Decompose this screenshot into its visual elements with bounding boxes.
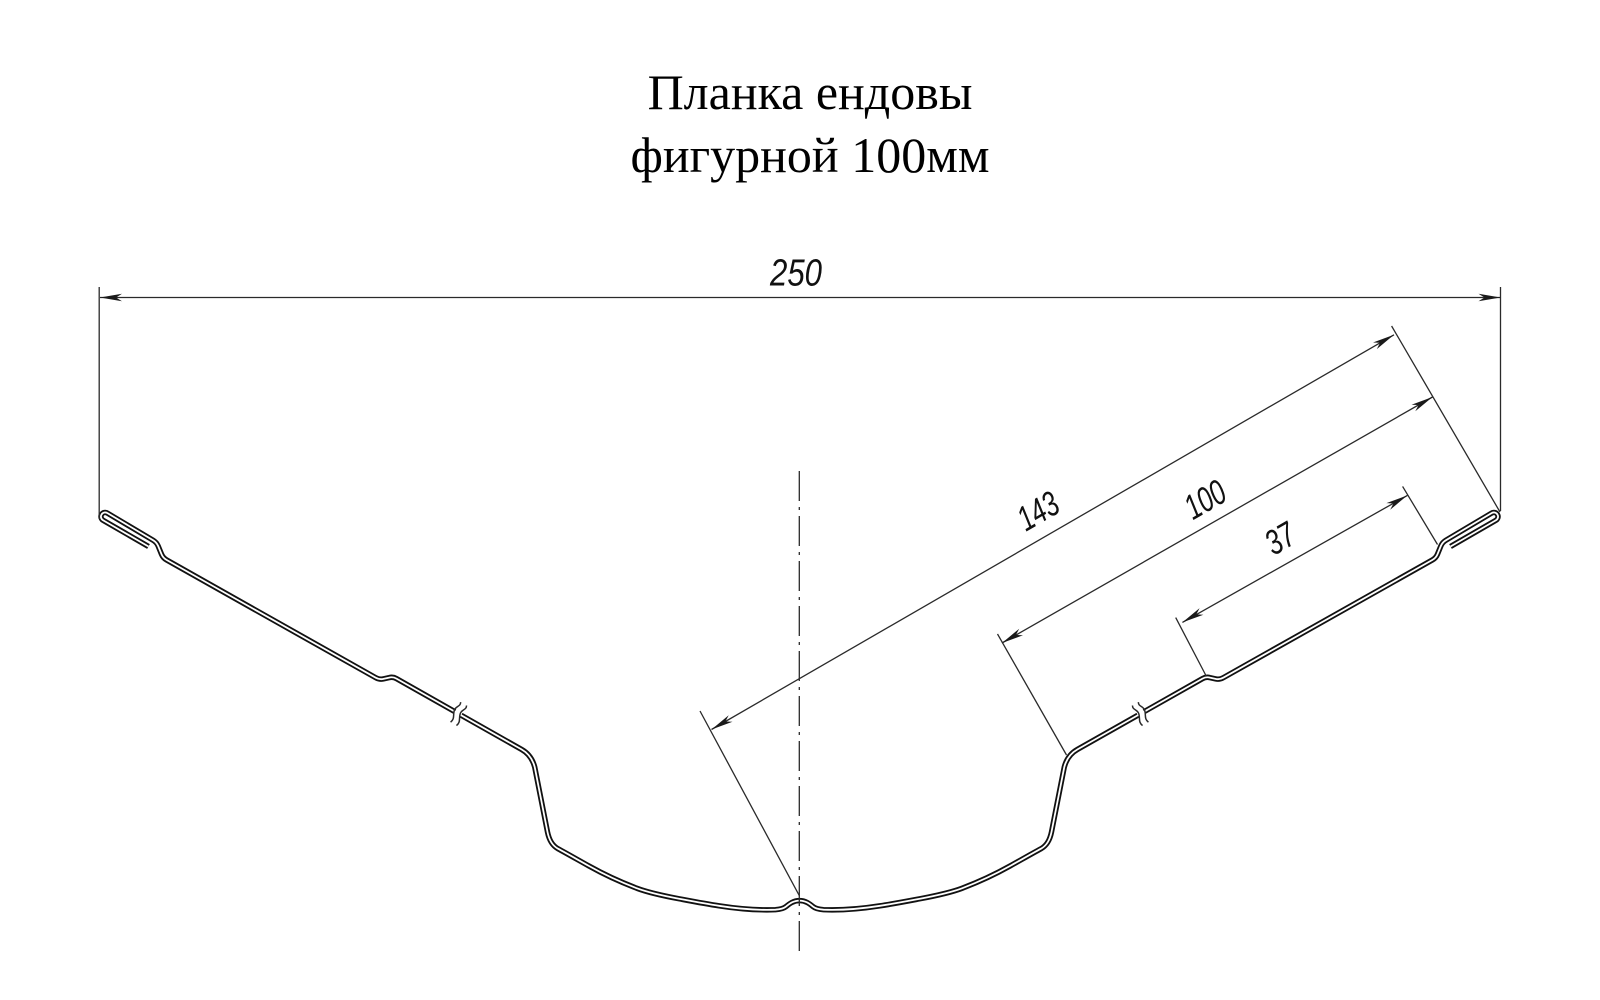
svg-text:Планка ендовы: Планка ендовы	[648, 64, 973, 120]
svg-text:250: 250	[769, 253, 822, 295]
svg-text:фигурной 100мм: фигурной 100мм	[631, 127, 990, 183]
